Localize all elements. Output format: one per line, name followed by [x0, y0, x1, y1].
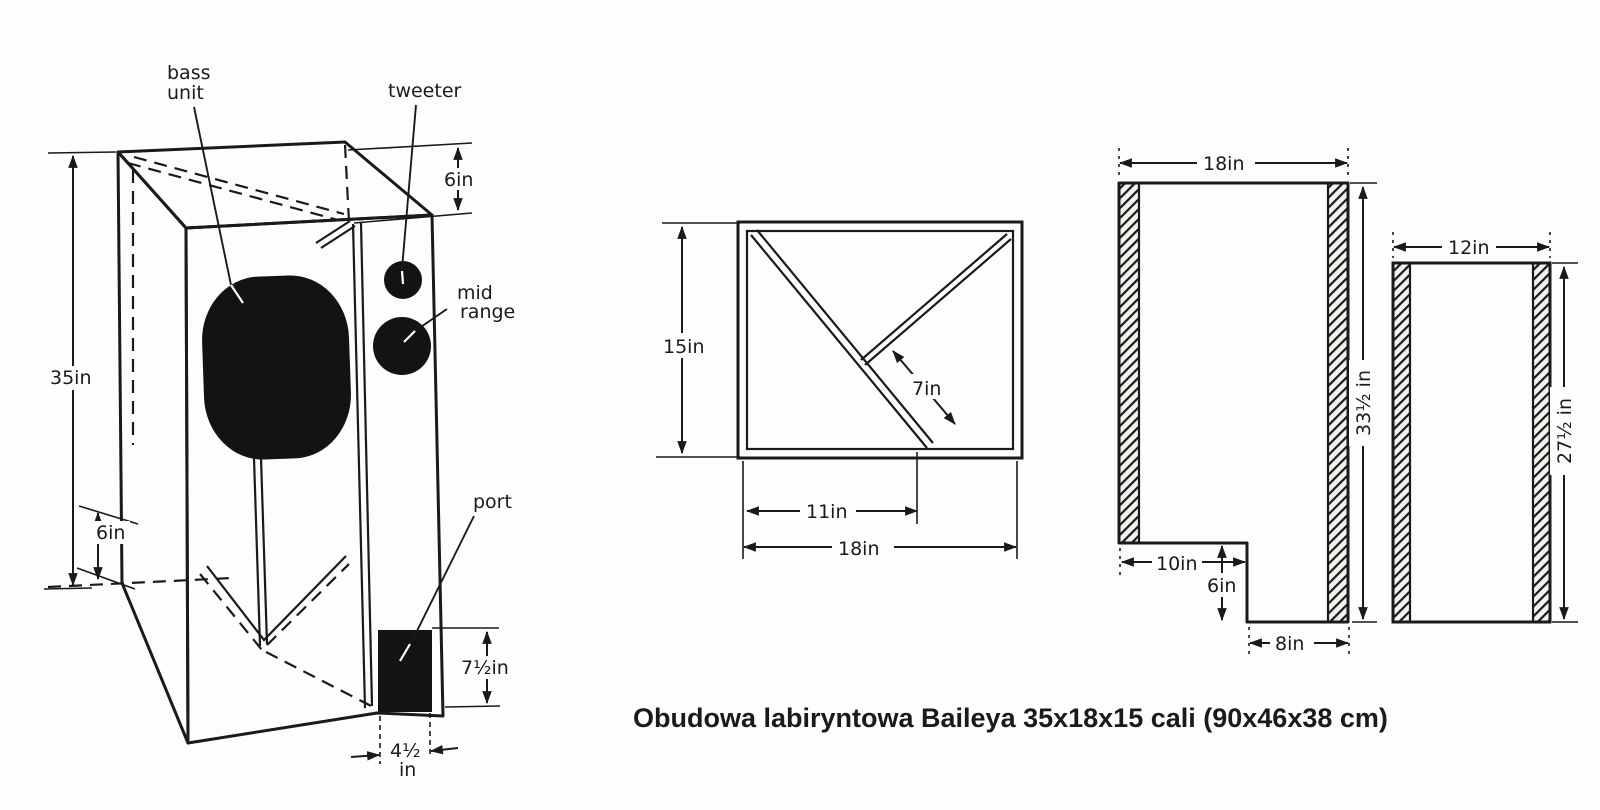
- dim-back-width-12in: 12in: [1393, 232, 1550, 259]
- top-view: 7in 15in 11in 18in: [656, 222, 1022, 560]
- side-panel-right-hatch: [1328, 183, 1348, 622]
- dim-notch-height-6in-label: 6in: [1207, 575, 1236, 597]
- dim-offset-11in-label: 11in: [806, 501, 848, 523]
- scanned-page: bass unit tweeter mid range port 35in 6i…: [0, 0, 1600, 810]
- label-bass-unit-line1: bass: [167, 62, 211, 84]
- label-bass-unit-line2: unit: [167, 82, 204, 104]
- back-panel-left-hatch: [1393, 263, 1410, 622]
- dim-height-35in-label: 35in: [50, 367, 92, 389]
- dim-back-height-27half-label: 27½ in: [1554, 398, 1576, 464]
- label-tweeter: tweeter: [388, 80, 462, 102]
- dim-partition-7in-label: 7in: [912, 378, 941, 400]
- dim-port-height: 7½in: [432, 628, 513, 707]
- dim-side-width-18in: 18in: [1119, 148, 1348, 178]
- dim-notch-height-6in: 6in: [1202, 546, 1244, 620]
- label-mid-range-line2: range: [460, 301, 515, 323]
- dim-side-width-18in-label: 18in: [1203, 153, 1245, 175]
- caption: Obudowa labiryntowa Baileya 35x18x15 cal…: [633, 703, 1388, 733]
- dim-top-6in-label: 6in: [444, 169, 473, 191]
- dim-offset-11in: 11in: [747, 452, 917, 524]
- back-panel-outline: [1393, 263, 1550, 622]
- dim-depth-15in-label: 15in: [663, 336, 705, 358]
- side-panel-left-hatch: [1119, 183, 1139, 543]
- perspective-view: bass unit tweeter mid range port 35in 6i…: [44, 62, 515, 781]
- back-panel-right-hatch: [1533, 263, 1550, 622]
- cabinet-top-face: [118, 142, 432, 228]
- dim-side-height-33half: 33½ in: [1349, 183, 1377, 622]
- dim-side-height-33half-label: 33½ in: [1353, 370, 1375, 436]
- dim-port-width-label-line2: in: [399, 759, 416, 781]
- dim-bottom-left-6in: 6in: [77, 506, 138, 589]
- bass-driver: [200, 273, 353, 461]
- technical-drawing: bass unit tweeter mid range port 35in 6i…: [0, 0, 1600, 810]
- side-panel-view: 18in 33½ in 10in 6in 8in: [1119, 148, 1377, 658]
- dim-bottom-left-6in-label: 6in: [96, 522, 125, 544]
- dim-back-height-27half: 27½ in: [1550, 263, 1578, 622]
- port-opening: [378, 630, 432, 712]
- top-view-partitions: [751, 230, 1011, 448]
- dim-bottom-width-8in-label: 8in: [1275, 633, 1304, 655]
- dim-top-6in: 6in: [348, 143, 481, 223]
- dim-partition-7in: 7in: [893, 351, 955, 424]
- label-port: port: [473, 491, 512, 513]
- dim-depth-15in: 15in: [656, 223, 740, 457]
- dim-bottom-width-8in: 8in: [1249, 627, 1349, 658]
- cabinet-side-face: [118, 152, 188, 743]
- dim-notch-width-10in-label: 10in: [1156, 553, 1198, 575]
- dim-width-18in-label: 18in: [838, 538, 880, 560]
- dim-port-height-label: 7½in: [461, 657, 509, 679]
- dim-back-width-12in-label: 12in: [1448, 237, 1490, 259]
- dim-port-width: 4½ in: [351, 713, 458, 781]
- back-panel-view: 12in 27½ in: [1393, 232, 1578, 622]
